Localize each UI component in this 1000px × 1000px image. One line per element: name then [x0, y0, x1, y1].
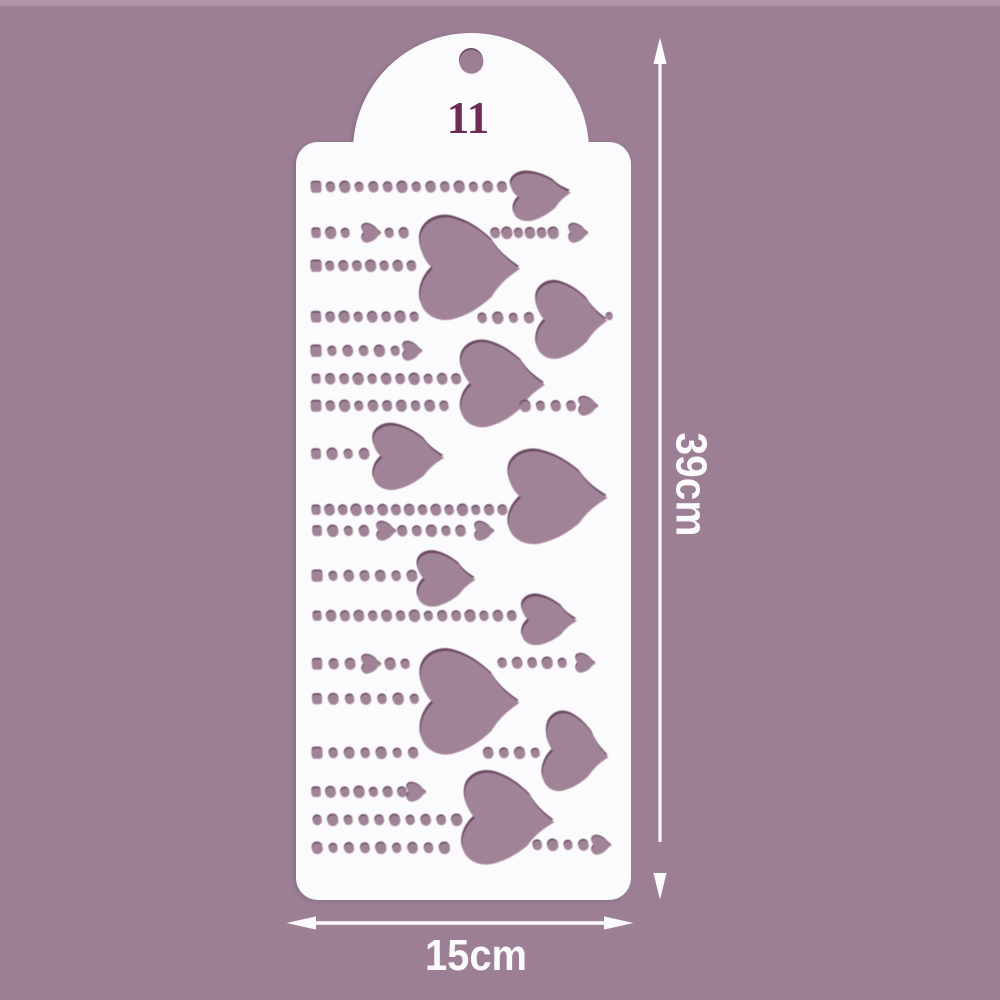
svg-text:15cm: 15cm [425, 931, 527, 980]
svg-text:39cm: 39cm [667, 433, 716, 537]
svg-text:11: 11 [447, 93, 490, 143]
